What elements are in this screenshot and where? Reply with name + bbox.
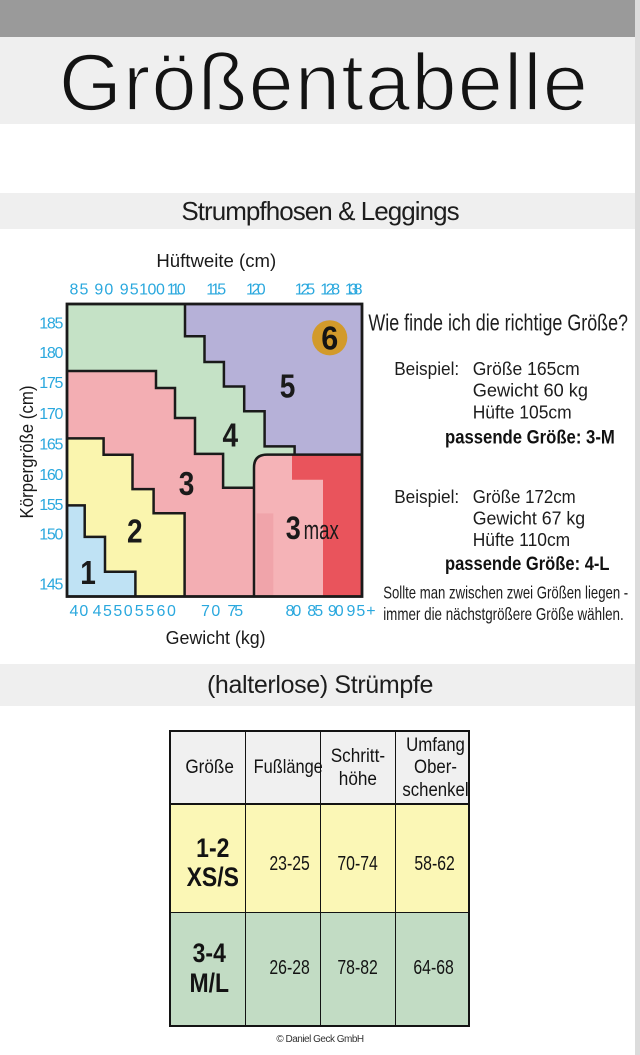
svg-text:45: 45 xyxy=(93,603,112,620)
svg-text:90: 90 xyxy=(94,282,113,299)
svg-text:180: 180 xyxy=(39,345,63,362)
svg-text:6: 6 xyxy=(321,320,338,357)
svg-text:4: 4 xyxy=(223,418,239,455)
svg-text:Größe 172cm: Größe 172cm xyxy=(473,486,576,507)
svg-text:175: 175 xyxy=(39,375,63,392)
svg-text:Hüftweite (cm): Hüftweite (cm) xyxy=(156,250,276,271)
svg-text:128: 128 xyxy=(320,282,340,299)
svg-text:55: 55 xyxy=(135,603,155,620)
svg-text:165: 165 xyxy=(39,437,63,454)
svg-text:170: 170 xyxy=(39,406,63,423)
svg-text:passende Größe: 4-L: passende Größe: 4-L xyxy=(445,553,610,575)
svg-text:50: 50 xyxy=(113,603,132,620)
svg-text:immer die nächstgrößere Größe: immer die nächstgrößere Größe wählen. xyxy=(383,604,624,624)
svg-text:125: 125 xyxy=(295,282,315,299)
svg-text:160: 160 xyxy=(39,467,63,484)
svg-text:Gewicht 67 kg: Gewicht 67 kg xyxy=(473,508,586,529)
svg-text:120: 120 xyxy=(246,282,266,299)
svg-text:Gewicht (kg): Gewicht (kg) xyxy=(166,627,266,648)
svg-text:Hüfte 110cm: Hüfte 110cm xyxy=(473,529,571,550)
svg-text:40: 40 xyxy=(70,603,89,620)
svg-text:145: 145 xyxy=(39,576,63,593)
svg-text:passende Größe: 3-M: passende Größe: 3-M xyxy=(445,427,615,449)
svg-text:Hüfte 105cm: Hüfte 105cm xyxy=(473,401,572,422)
svg-text:95: 95 xyxy=(120,282,139,299)
svg-text:Wie finde ich die richtige Grö: Wie finde ich die richtige Größe? xyxy=(368,310,628,336)
svg-text:Sollte man zwischen zwei Größe: Sollte man zwischen zwei Größen liegen - xyxy=(383,583,628,603)
svg-text:75: 75 xyxy=(227,603,243,620)
svg-text:95+: 95+ xyxy=(346,603,375,620)
svg-text:150: 150 xyxy=(39,527,63,544)
svg-text:3: 3 xyxy=(179,466,195,503)
svg-text:100: 100 xyxy=(139,282,165,299)
svg-text:Gewicht 60 kg: Gewicht 60 kg xyxy=(473,380,588,401)
svg-text:85: 85 xyxy=(307,603,323,620)
svg-text:3: 3 xyxy=(286,510,301,546)
svg-text:5: 5 xyxy=(280,369,296,406)
svg-text:Beispiel:: Beispiel: xyxy=(394,486,459,507)
svg-text:Körpergröße (cm): Körpergröße (cm) xyxy=(16,386,37,519)
svg-text:155: 155 xyxy=(39,497,63,514)
svg-text:Beispiel:: Beispiel: xyxy=(394,358,459,379)
svg-text:115: 115 xyxy=(206,282,226,299)
svg-text:max: max xyxy=(304,515,340,545)
svg-text:85: 85 xyxy=(69,282,88,299)
svg-text:90: 90 xyxy=(328,603,344,620)
svg-text:185: 185 xyxy=(39,315,63,332)
svg-text:60: 60 xyxy=(157,603,176,620)
svg-text:1: 1 xyxy=(80,555,96,592)
svg-text:138: 138 xyxy=(345,282,363,299)
svg-text:2: 2 xyxy=(127,514,143,551)
svg-text:70: 70 xyxy=(201,603,220,620)
svg-text:80: 80 xyxy=(286,603,302,620)
svg-text:110: 110 xyxy=(167,282,186,299)
svg-text:Größe 165cm: Größe 165cm xyxy=(473,358,580,379)
